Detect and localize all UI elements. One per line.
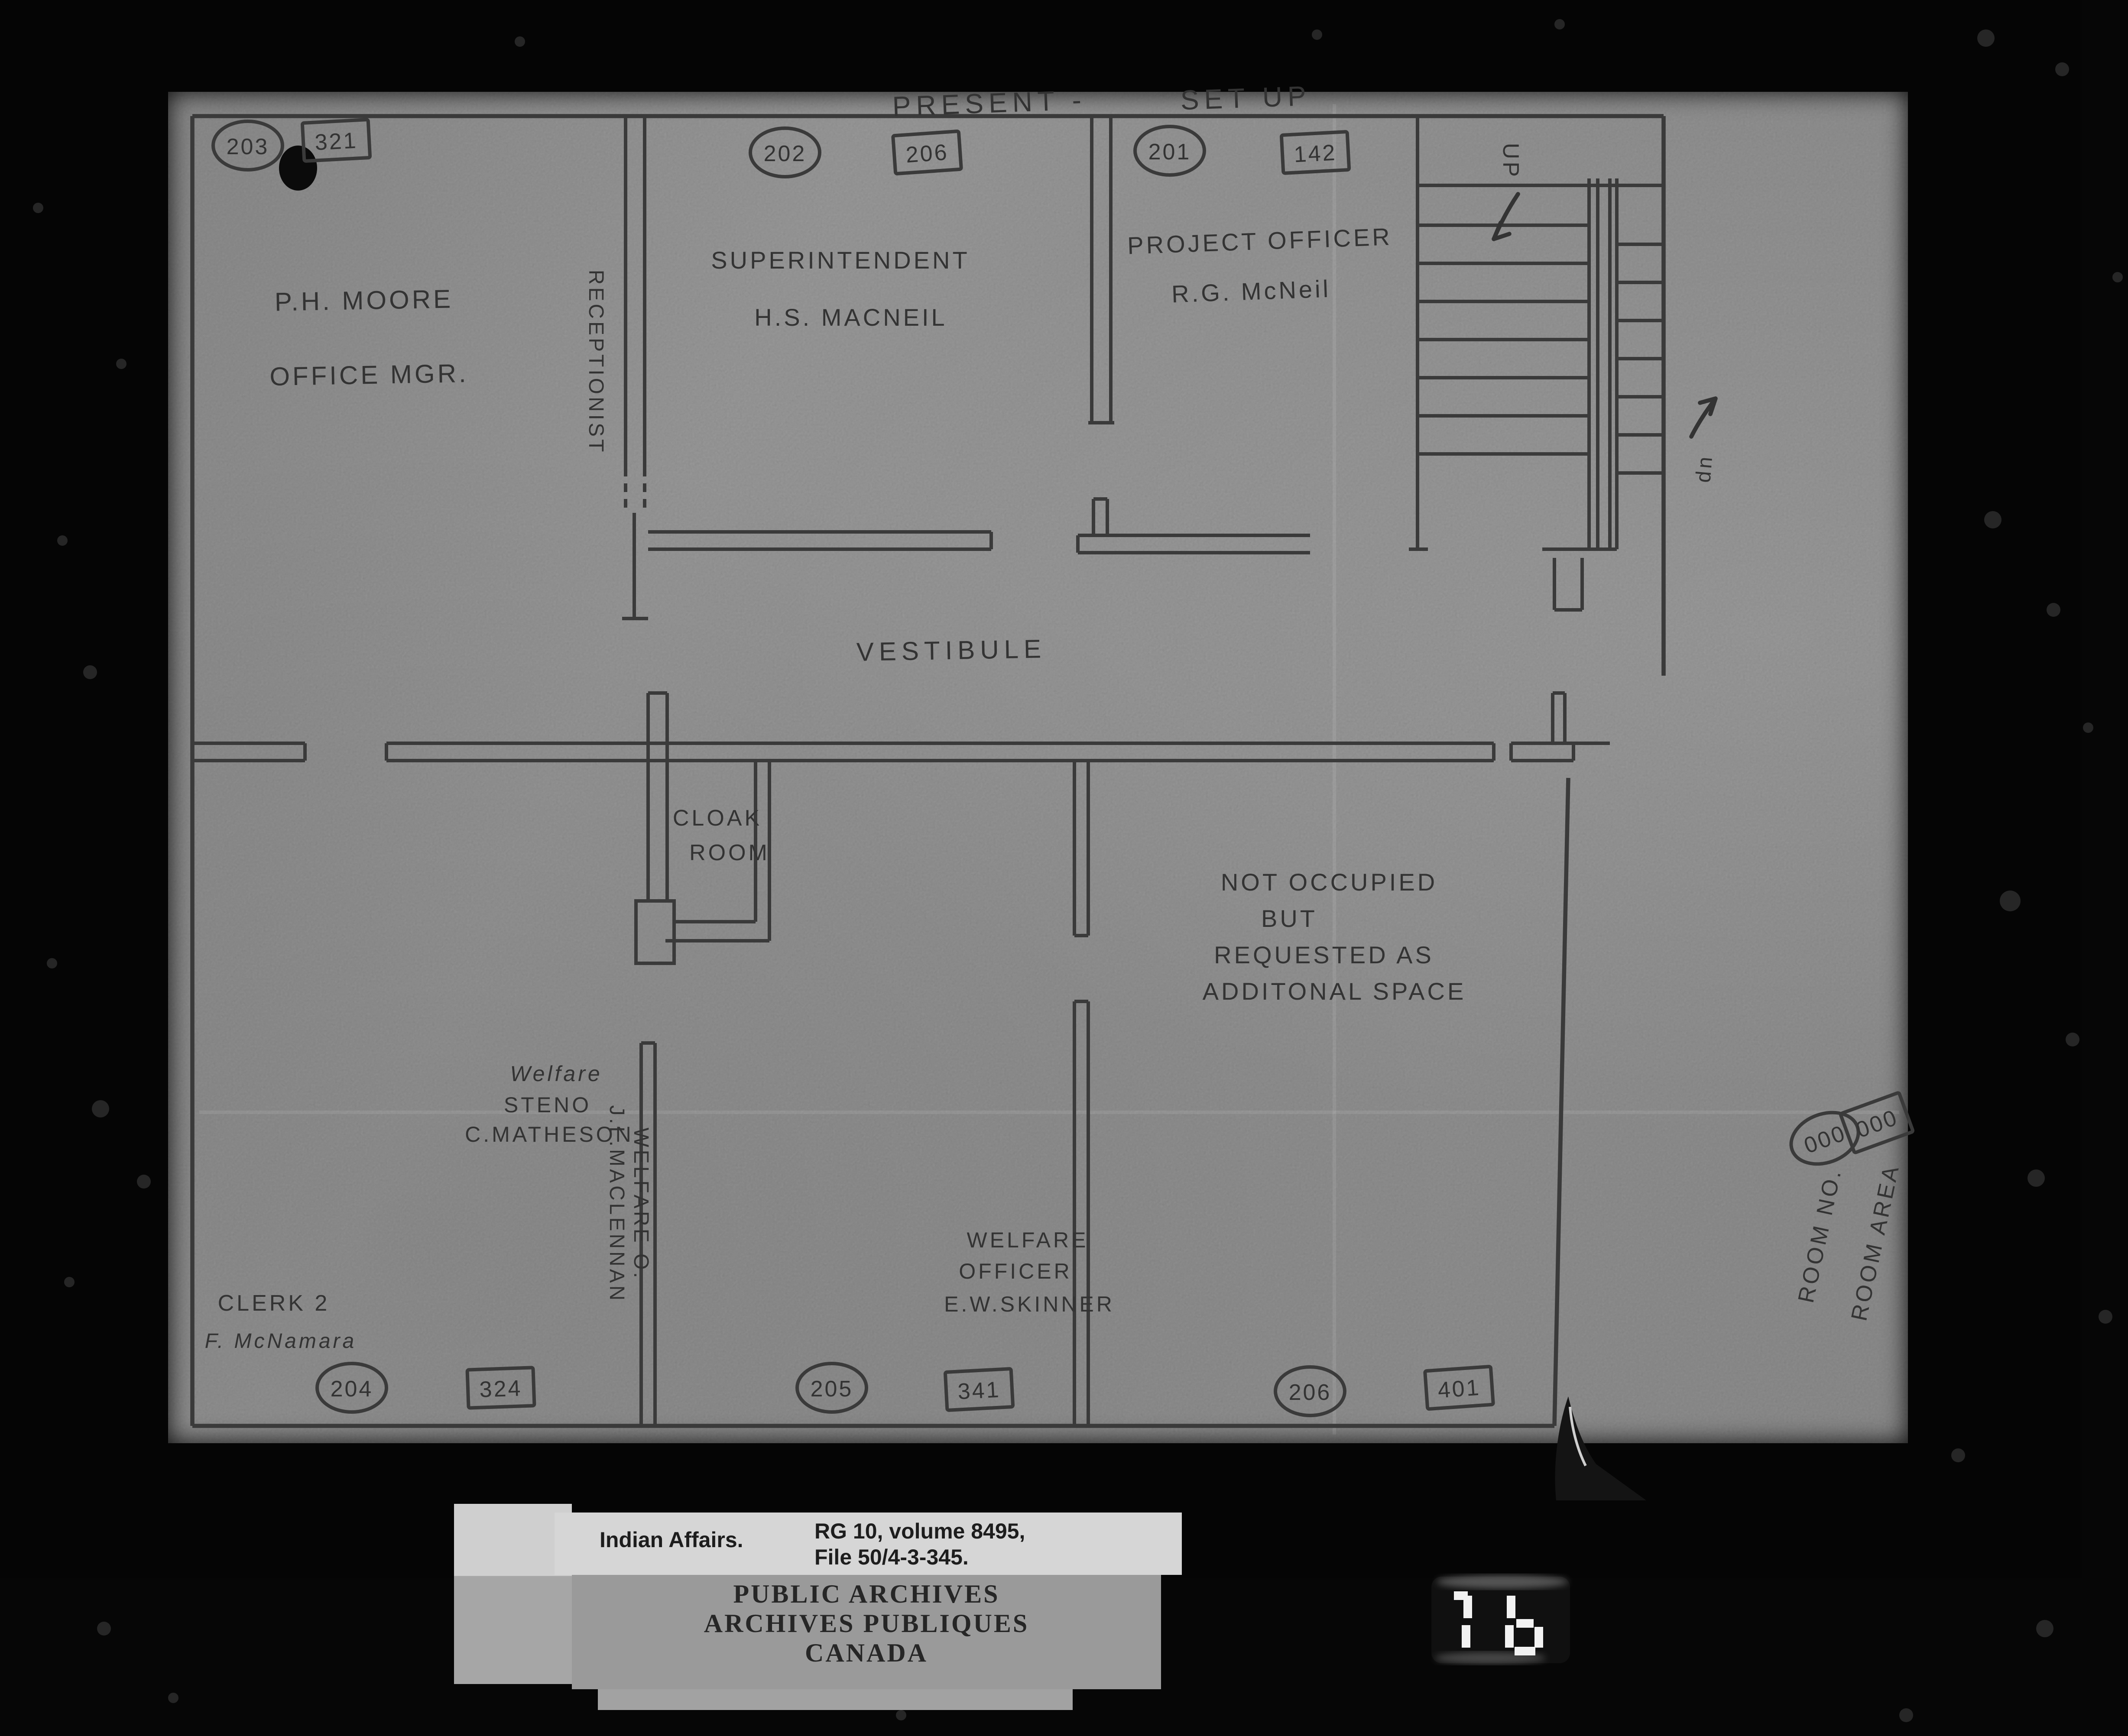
badge-area-401: 401 bbox=[1423, 1365, 1495, 1411]
label-receptionist: RECEPTIONIST bbox=[584, 270, 608, 455]
badge-text: 206 bbox=[905, 138, 950, 167]
archive-reference-line1: RG 10, volume 8495, bbox=[814, 1519, 1025, 1544]
badge-room-204: 204 bbox=[315, 1362, 388, 1414]
plan-title-right: SET UP bbox=[1180, 83, 1312, 118]
badge-room-205: 205 bbox=[795, 1362, 868, 1414]
label-maclennan-line: J.L.MACLENNAN bbox=[605, 1105, 629, 1303]
badge-room-206: 206 bbox=[1274, 1365, 1346, 1417]
badge-area-321: 321 bbox=[301, 118, 372, 163]
label-welfare-officer-3: E.W.SKINNER bbox=[944, 1292, 1115, 1317]
label-stairs-up-bottom: up bbox=[1693, 456, 1720, 486]
label-not-occupied-1: NOT OCCUPIED bbox=[1221, 868, 1437, 896]
label-welfare-steno-2: STENO bbox=[504, 1093, 591, 1117]
label-welfare-officer-2: OFFICER bbox=[959, 1260, 1072, 1284]
label-welfare-o-maclennan: WELFARE O. J.L.MACLENNAN bbox=[605, 1105, 653, 1303]
archive-collection-text: Indian Affairs. bbox=[600, 1528, 743, 1552]
badge-text: 205 bbox=[811, 1375, 853, 1401]
badge-room-201: 201 bbox=[1133, 125, 1206, 177]
stamp-line2: ARCHIVES PUBLIQUES bbox=[572, 1611, 1161, 1641]
badge-text: 324 bbox=[479, 1374, 523, 1401]
label-welfare-officer-1: WELFARE bbox=[967, 1228, 1089, 1253]
label-stairs-up-top: UP bbox=[1498, 143, 1524, 179]
badge-text: 202 bbox=[764, 139, 807, 165]
label-not-occupied-3: REQUESTED AS bbox=[1214, 941, 1434, 968]
label-superintendent-title: SUPERINTENDENT bbox=[711, 246, 970, 274]
badge-text: 000 bbox=[1852, 1103, 1901, 1142]
badge-area-324: 324 bbox=[465, 1366, 536, 1410]
label-office-mgr-title: OFFICE MGR. bbox=[269, 360, 469, 392]
label-welfare-o-line: WELFARE O. bbox=[629, 1105, 653, 1303]
label-superintendent-name: H.S. MACNEIL bbox=[754, 303, 947, 331]
label-welfare-steno-1: Welfare bbox=[510, 1062, 602, 1086]
badge-text: 401 bbox=[1437, 1373, 1482, 1402]
badge-text: 204 bbox=[331, 1375, 373, 1401]
badge-text: 321 bbox=[314, 126, 358, 154]
badge-area-341: 341 bbox=[944, 1367, 1015, 1412]
label-cloak-room: ROOM bbox=[689, 839, 770, 865]
badge-text: 142 bbox=[1293, 138, 1337, 166]
badge-area-206: 206 bbox=[891, 130, 963, 176]
frame-counter bbox=[1431, 1575, 1570, 1664]
public-archives-stamp: PUBLIC ARCHIVES ARCHIVES PUBLIQUES CANAD… bbox=[572, 1575, 1161, 1689]
stamp-line3: CANADA bbox=[572, 1641, 1161, 1670]
badge-text: 201 bbox=[1148, 138, 1191, 164]
floor-plan-drawing bbox=[0, 0, 2128, 1736]
badge-text: 206 bbox=[1289, 1378, 1332, 1404]
stamp-line1: PUBLIC ARCHIVES bbox=[572, 1582, 1161, 1611]
microfilm-frame: PRESENT - SET UP 203 321 202 206 201 142… bbox=[0, 0, 2128, 1736]
label-vestibule: VESTIBULE bbox=[856, 635, 1046, 668]
archive-card-bottom-edge bbox=[598, 1689, 1073, 1710]
badge-text: 203 bbox=[227, 133, 269, 159]
archive-reference-line2: File 50/4-3-345. bbox=[814, 1545, 969, 1570]
badge-text: 341 bbox=[957, 1375, 1001, 1403]
badge-area-142: 142 bbox=[1280, 130, 1351, 175]
archive-reference-label: Indian Affairs. RG 10, volume 8495, File… bbox=[555, 1513, 1182, 1575]
label-not-occupied-4: ADDITONAL SPACE bbox=[1203, 977, 1466, 1005]
label-not-occupied-2: BUT bbox=[1261, 904, 1317, 932]
badge-room-203: 203 bbox=[211, 120, 284, 172]
label-project-officer-name: R.G. McNeil bbox=[1171, 275, 1331, 308]
label-cloak: CLOAK bbox=[673, 805, 762, 831]
label-clerk-name: F. McNamara bbox=[205, 1329, 357, 1353]
label-clerk: CLERK 2 bbox=[218, 1290, 330, 1316]
label-office-mgr-name: P.H. MOORE bbox=[274, 285, 453, 317]
badge-text: 000 bbox=[1800, 1119, 1849, 1158]
badge-room-202: 202 bbox=[749, 126, 821, 178]
